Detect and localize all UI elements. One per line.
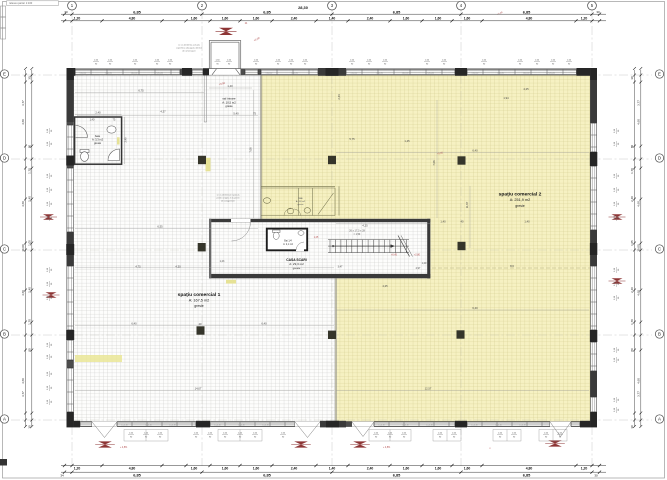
svg-text:l: 1,50: l: 1,50 bbox=[354, 233, 361, 236]
svg-text:A: 3,8 m2: A: 3,8 m2 bbox=[296, 200, 306, 203]
svg-text:4,60: 4,60 bbox=[21, 378, 25, 384]
svg-text:4,80: 4,80 bbox=[526, 466, 533, 470]
svg-text:Lw=1,60: Lw=1,60 bbox=[80, 73, 86, 75]
svg-text:Lw=1,60: Lw=1,60 bbox=[376, 73, 382, 75]
svg-text:1,60: 1,60 bbox=[253, 17, 260, 21]
svg-text:de amenajare: de amenajare bbox=[182, 49, 196, 52]
svg-text:6,35: 6,35 bbox=[157, 225, 163, 229]
svg-text:Lw=1,60: Lw=1,60 bbox=[262, 424, 268, 426]
svg-text:spaţiu comercial 1: spaţiu comercial 1 bbox=[178, 292, 221, 298]
svg-text:se va desfiinta actuala: se va desfiinta actuala bbox=[178, 44, 200, 47]
svg-text:Bai 1/4: Bai 1/4 bbox=[284, 240, 292, 243]
svg-text:Lw=1,60: Lw=1,60 bbox=[157, 73, 163, 75]
svg-text:gresie: gresie bbox=[298, 203, 305, 206]
svg-text:4,80: 4,80 bbox=[129, 466, 136, 470]
svg-text:30: 30 bbox=[630, 425, 634, 429]
svg-text:A: 3,3 m2: A: 3,3 m2 bbox=[92, 138, 104, 142]
svg-text:1,70: 1,70 bbox=[630, 319, 634, 325]
svg-text:4,60: 4,60 bbox=[636, 378, 640, 384]
svg-text:1,23: 1,23 bbox=[220, 260, 225, 263]
svg-text:B: B bbox=[658, 332, 661, 337]
svg-text:1,60: 1,60 bbox=[222, 17, 229, 21]
svg-text:releveu parter 1:100: releveu parter 1:100 bbox=[9, 1, 33, 5]
svg-text:gresie: gresie bbox=[293, 266, 301, 270]
svg-text:2,97: 2,97 bbox=[416, 267, 421, 270]
svg-text:+0,45: +0,45 bbox=[391, 254, 398, 256]
svg-text:Lw=1,60: Lw=1,60 bbox=[523, 73, 529, 75]
svg-text:1,40: 1,40 bbox=[524, 220, 530, 224]
svg-text:A: A bbox=[3, 417, 6, 422]
svg-text:+2,80: +2,80 bbox=[414, 254, 421, 256]
svg-text:1,40: 1,40 bbox=[90, 118, 95, 121]
svg-text:30: 30 bbox=[594, 474, 598, 478]
svg-text:2,40: 2,40 bbox=[367, 466, 374, 470]
svg-text:B: B bbox=[3, 332, 6, 337]
svg-text:3,77: 3,77 bbox=[21, 100, 25, 106]
svg-text:A: A bbox=[658, 417, 661, 422]
svg-text:Lw=1,60: Lw=1,60 bbox=[428, 73, 434, 75]
svg-text:6,40: 6,40 bbox=[472, 149, 478, 153]
svg-text:2,40: 2,40 bbox=[124, 137, 128, 143]
svg-text:3,47: 3,47 bbox=[338, 266, 343, 269]
svg-text:12,57: 12,57 bbox=[425, 387, 432, 391]
svg-text:E: E bbox=[658, 72, 661, 77]
svg-text:1,40: 1,40 bbox=[440, 220, 446, 224]
svg-text:2,40: 2,40 bbox=[95, 111, 101, 115]
svg-text:80: 80 bbox=[630, 145, 634, 149]
svg-text:80: 80 bbox=[630, 348, 634, 352]
svg-text:baie: baie bbox=[95, 134, 101, 138]
svg-text:4,60: 4,60 bbox=[636, 290, 640, 296]
svg-text:gresie: gresie bbox=[515, 204, 525, 208]
svg-text:2,40: 2,40 bbox=[27, 196, 31, 202]
svg-text:Lw=1,60: Lw=1,60 bbox=[169, 424, 175, 426]
svg-text:Lw=1,60: Lw=1,60 bbox=[378, 424, 384, 426]
svg-text:4,60: 4,60 bbox=[21, 201, 25, 207]
svg-text:4,60: 4,60 bbox=[21, 119, 25, 125]
svg-text:11,67: 11,67 bbox=[465, 201, 469, 208]
svg-text:1,20: 1,20 bbox=[74, 466, 81, 470]
svg-text:+ 4,5%: + 4,5% bbox=[383, 447, 390, 449]
svg-text:6,85: 6,85 bbox=[263, 9, 271, 14]
svg-text:1,60: 1,60 bbox=[222, 466, 229, 470]
svg-text:80: 80 bbox=[27, 348, 31, 352]
svg-text:gresie: gresie bbox=[194, 304, 204, 308]
svg-text:1,70: 1,70 bbox=[27, 168, 31, 174]
svg-text:E: E bbox=[3, 72, 6, 77]
svg-text:4,25: 4,25 bbox=[362, 224, 368, 228]
svg-text:1,60: 1,60 bbox=[464, 17, 471, 21]
svg-text:3,77: 3,77 bbox=[21, 391, 25, 397]
svg-text:6,85: 6,85 bbox=[263, 473, 271, 478]
svg-text:Lw=1,60: Lw=1,60 bbox=[549, 73, 555, 75]
svg-text:+ 4,5%: + 4,5% bbox=[120, 447, 127, 449]
svg-text:7,06: 7,06 bbox=[432, 160, 436, 166]
svg-text:Lw=1,60: Lw=1,60 bbox=[497, 73, 503, 75]
svg-text:Lw=1,60: Lw=1,60 bbox=[495, 424, 501, 426]
svg-text:30: 30 bbox=[64, 10, 68, 14]
svg-text:A: 167,5 m2: A: 167,5 m2 bbox=[189, 299, 209, 303]
svg-text:80: 80 bbox=[27, 145, 31, 149]
svg-text:30: 30 bbox=[596, 10, 600, 14]
svg-text:1,60: 1,60 bbox=[403, 17, 410, 21]
svg-text:1,60: 1,60 bbox=[464, 466, 471, 470]
svg-text:CASA SCARI: CASA SCARI bbox=[286, 258, 306, 262]
svg-text:5,75: 5,75 bbox=[349, 137, 355, 141]
svg-text:Lw=1,60: Lw=1,60 bbox=[105, 73, 111, 75]
svg-text:4,60: 4,60 bbox=[636, 201, 640, 207]
svg-text:1,20: 1,20 bbox=[581, 17, 588, 21]
svg-text:1,70: 1,70 bbox=[630, 168, 634, 174]
svg-text:C: C bbox=[3, 247, 6, 252]
svg-text:30: 30 bbox=[630, 76, 634, 80]
svg-text:Lw=1,60: Lw=1,60 bbox=[426, 424, 432, 426]
svg-text:pentru origina in la pereti: pentru origina in la pereti bbox=[217, 196, 240, 199]
svg-text:34: 34 bbox=[60, 474, 64, 478]
svg-text:1,25: 1,25 bbox=[314, 237, 319, 239]
svg-text:6,85: 6,85 bbox=[393, 9, 401, 14]
svg-text:40: 40 bbox=[199, 322, 202, 326]
svg-text:75: 75 bbox=[253, 112, 256, 116]
svg-text:6,85: 6,85 bbox=[393, 473, 401, 478]
svg-text:Lw=1,60: Lw=1,60 bbox=[214, 424, 220, 426]
svg-text:D: D bbox=[3, 156, 6, 161]
svg-text:6,40: 6,40 bbox=[472, 306, 478, 310]
svg-text:6,85: 6,85 bbox=[523, 9, 531, 14]
svg-text:40: 40 bbox=[461, 220, 464, 224]
svg-text:spaţiu comercial 2: spaţiu comercial 2 bbox=[499, 192, 542, 198]
svg-text:D: D bbox=[658, 156, 661, 161]
svg-text:1,45: 1,45 bbox=[404, 139, 410, 143]
svg-text:baie: baie bbox=[298, 198, 303, 200]
svg-text:1,05: 1,05 bbox=[27, 240, 31, 246]
svg-text:Lw=1,60: Lw=1,60 bbox=[266, 73, 272, 75]
svg-text:Lw=1,60: Lw=1,60 bbox=[471, 424, 477, 426]
svg-text:6,85: 6,85 bbox=[133, 473, 141, 478]
svg-text:1,60: 1,60 bbox=[435, 17, 442, 21]
svg-text:1,94: 1,94 bbox=[503, 96, 509, 100]
svg-text:2,40: 2,40 bbox=[27, 287, 31, 293]
svg-text:gresie: gresie bbox=[94, 141, 102, 145]
svg-text:Lw=1,60: Lw=1,60 bbox=[351, 73, 357, 75]
svg-text:1,40: 1,40 bbox=[329, 466, 336, 470]
svg-text:2,40: 2,40 bbox=[630, 196, 634, 202]
svg-text:6,85: 6,85 bbox=[523, 473, 531, 478]
svg-text:1,60: 1,60 bbox=[253, 466, 260, 470]
svg-text:1,20: 1,20 bbox=[581, 466, 588, 470]
svg-text:19,00: 19,00 bbox=[21, 244, 25, 252]
svg-text:7,06: 7,06 bbox=[249, 147, 253, 153]
svg-text:19,00: 19,00 bbox=[636, 244, 640, 252]
svg-text:6,40: 6,40 bbox=[131, 322, 137, 326]
svg-text:4,80: 4,80 bbox=[129, 17, 136, 21]
svg-text:de catagorisire: de catagorisire bbox=[221, 199, 235, 202]
svg-text:1,40: 1,40 bbox=[227, 84, 233, 88]
svg-text:1,05: 1,05 bbox=[630, 240, 634, 246]
svg-text:1,40: 1,40 bbox=[329, 17, 336, 21]
svg-text:C: C bbox=[658, 247, 661, 252]
svg-text:30: 30 bbox=[27, 425, 31, 429]
svg-text:2,40: 2,40 bbox=[291, 17, 298, 21]
svg-text:Lw=1,60: Lw=1,60 bbox=[145, 424, 151, 426]
svg-text:4,80: 4,80 bbox=[526, 17, 533, 21]
svg-text:2,44: 2,44 bbox=[337, 94, 341, 100]
svg-text:2,40: 2,40 bbox=[291, 466, 298, 470]
svg-text:Lw=1,60: Lw=1,60 bbox=[402, 73, 408, 75]
svg-text:8,6: 8,6 bbox=[510, 264, 514, 268]
svg-text:Lw=1,60: Lw=1,60 bbox=[238, 424, 244, 426]
svg-text:Lw=1,60: Lw=1,60 bbox=[121, 424, 127, 426]
svg-text:2,40: 2,40 bbox=[367, 17, 374, 21]
svg-text:1,60: 1,60 bbox=[403, 466, 410, 470]
svg-text:4,25: 4,25 bbox=[523, 87, 529, 91]
svg-text:4,37: 4,37 bbox=[160, 110, 166, 114]
svg-text:4,60: 4,60 bbox=[21, 290, 25, 296]
svg-text:Lw=1,60: Lw=1,60 bbox=[519, 424, 525, 426]
svg-text:14,07: 14,07 bbox=[195, 387, 202, 391]
svg-text:4,75: 4,75 bbox=[135, 264, 141, 268]
svg-text:2,40: 2,40 bbox=[630, 287, 634, 293]
svg-text:copertina adaugata ulterior: copertina adaugata ulterior bbox=[176, 46, 202, 49]
svg-text:5,40: 5,40 bbox=[233, 112, 239, 116]
svg-text:A: 251,9 m2: A: 251,9 m2 bbox=[510, 198, 530, 202]
svg-text:Lw=1,60: Lw=1,60 bbox=[402, 424, 408, 426]
svg-text:1,60: 1,60 bbox=[435, 466, 442, 470]
svg-text:Lw=1,60: Lw=1,60 bbox=[291, 73, 297, 75]
svg-text:se va desfiintare spatiala: se va desfiintare spatiala bbox=[217, 194, 241, 197]
svg-text:Lw=1,60: Lw=1,60 bbox=[131, 73, 137, 75]
svg-text:Lw=1,60: Lw=1,60 bbox=[472, 73, 478, 75]
svg-text:1,60: 1,60 bbox=[191, 17, 198, 21]
svg-text:gresie: gresie bbox=[225, 104, 233, 108]
svg-text:4,60: 4,60 bbox=[636, 119, 640, 125]
svg-text:28,30: 28,30 bbox=[298, 5, 308, 10]
svg-text:4,30: 4,30 bbox=[175, 264, 181, 268]
svg-text:1,20: 1,20 bbox=[74, 17, 81, 21]
svg-text:1,60: 1,60 bbox=[191, 466, 198, 470]
svg-text:1,20: 1,20 bbox=[422, 262, 427, 265]
svg-text:6,85: 6,85 bbox=[133, 9, 141, 14]
svg-text:6,75: 6,75 bbox=[138, 89, 144, 93]
svg-text:3,77: 3,77 bbox=[636, 100, 640, 106]
svg-text:4,25: 4,25 bbox=[382, 284, 388, 288]
svg-text:1,70: 1,70 bbox=[27, 319, 31, 325]
svg-text:6,40: 6,40 bbox=[261, 322, 267, 326]
svg-text:A: 2,1 m2: A: 2,1 m2 bbox=[283, 243, 294, 246]
svg-text:A: 10,5 m2: A: 10,5 m2 bbox=[222, 100, 236, 104]
svg-text:30: 30 bbox=[27, 76, 31, 80]
svg-text:3,77: 3,77 bbox=[636, 391, 640, 397]
